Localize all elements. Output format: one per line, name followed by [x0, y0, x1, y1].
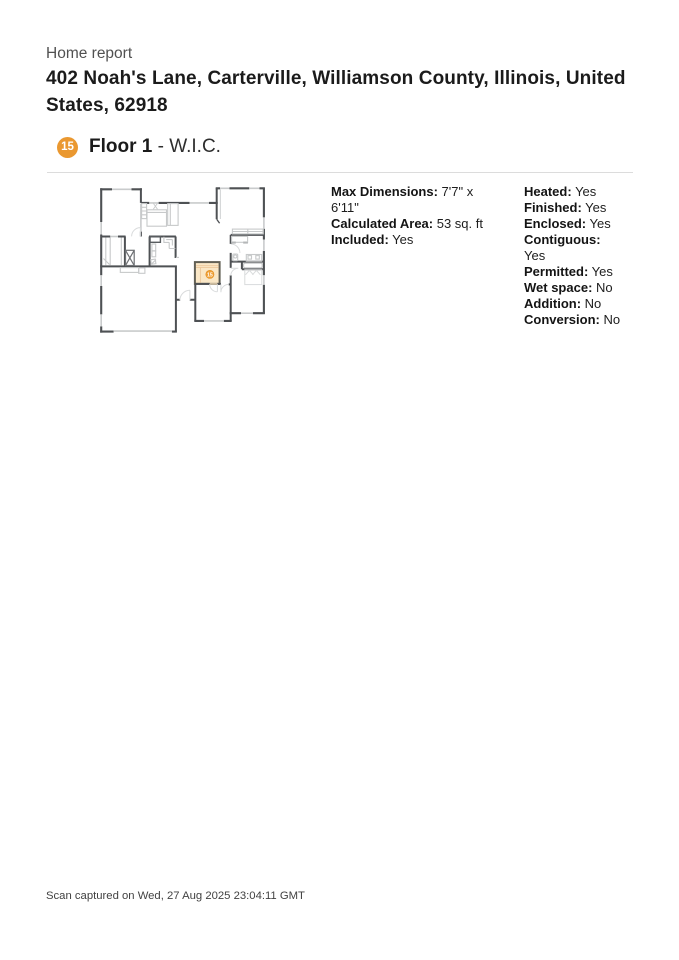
svg-text:15: 15 — [207, 272, 213, 278]
